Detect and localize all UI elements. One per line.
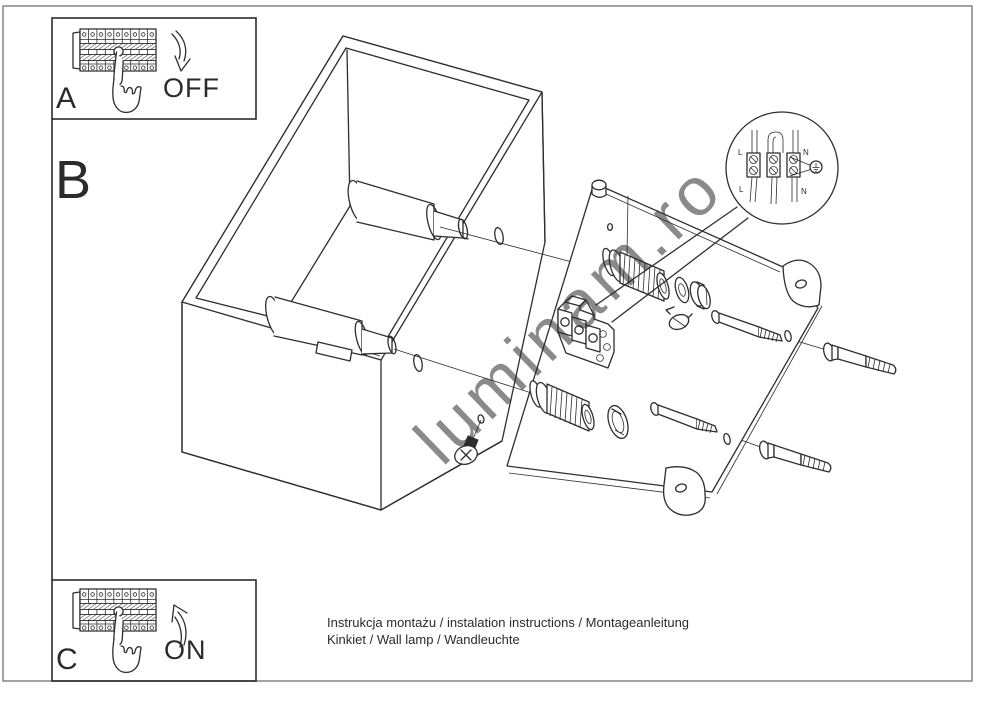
wire-label-n-top: N: [803, 148, 809, 157]
wire-label-l-top: L: [738, 148, 743, 157]
wire-label-n-bottom: N: [801, 187, 807, 196]
step-a-label: A: [56, 82, 76, 115]
on-label: ON: [164, 635, 207, 665]
footer-line-2: Kinkiet / Wall lamp / Wandleuchte: [327, 632, 520, 647]
diagram-canvas: A OFF C ON B: [0, 0, 1000, 707]
step-b-label: B: [55, 150, 91, 210]
step-a-panel: A OFF: [52, 18, 256, 119]
off-label: OFF: [163, 73, 220, 103]
instruction-sheet: A OFF C ON B: [0, 0, 1000, 707]
wall-plug-lower: [758, 440, 831, 472]
step-c-panel: C ON: [52, 580, 256, 681]
breaker-panel-c-illustration: [73, 589, 156, 672]
callout-terminal-block: [747, 153, 800, 177]
footer-line-1: Instrukcja montażu / instalation instruc…: [327, 615, 689, 630]
wire-label-l-bottom: L: [739, 185, 744, 194]
step-c-label: C: [56, 643, 78, 676]
mounting-ear-bottom: [664, 467, 706, 516]
wall-plug-upper: [822, 342, 896, 374]
off-arrow-icon: [172, 31, 190, 71]
breaker-panel-a-illustration: [73, 29, 156, 112]
